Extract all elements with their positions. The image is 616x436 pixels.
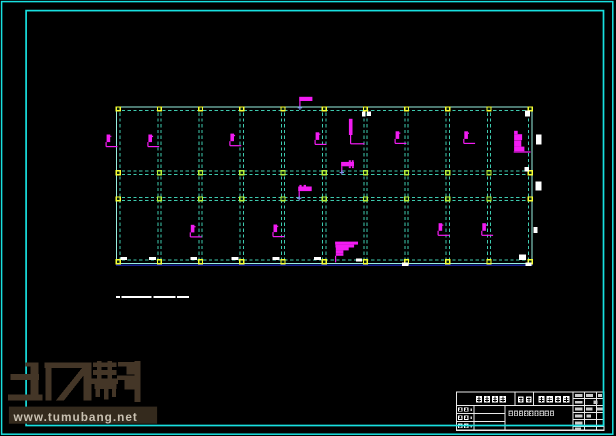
svg-text:www.tumubang.net: www.tumubang.net [13,410,138,424]
